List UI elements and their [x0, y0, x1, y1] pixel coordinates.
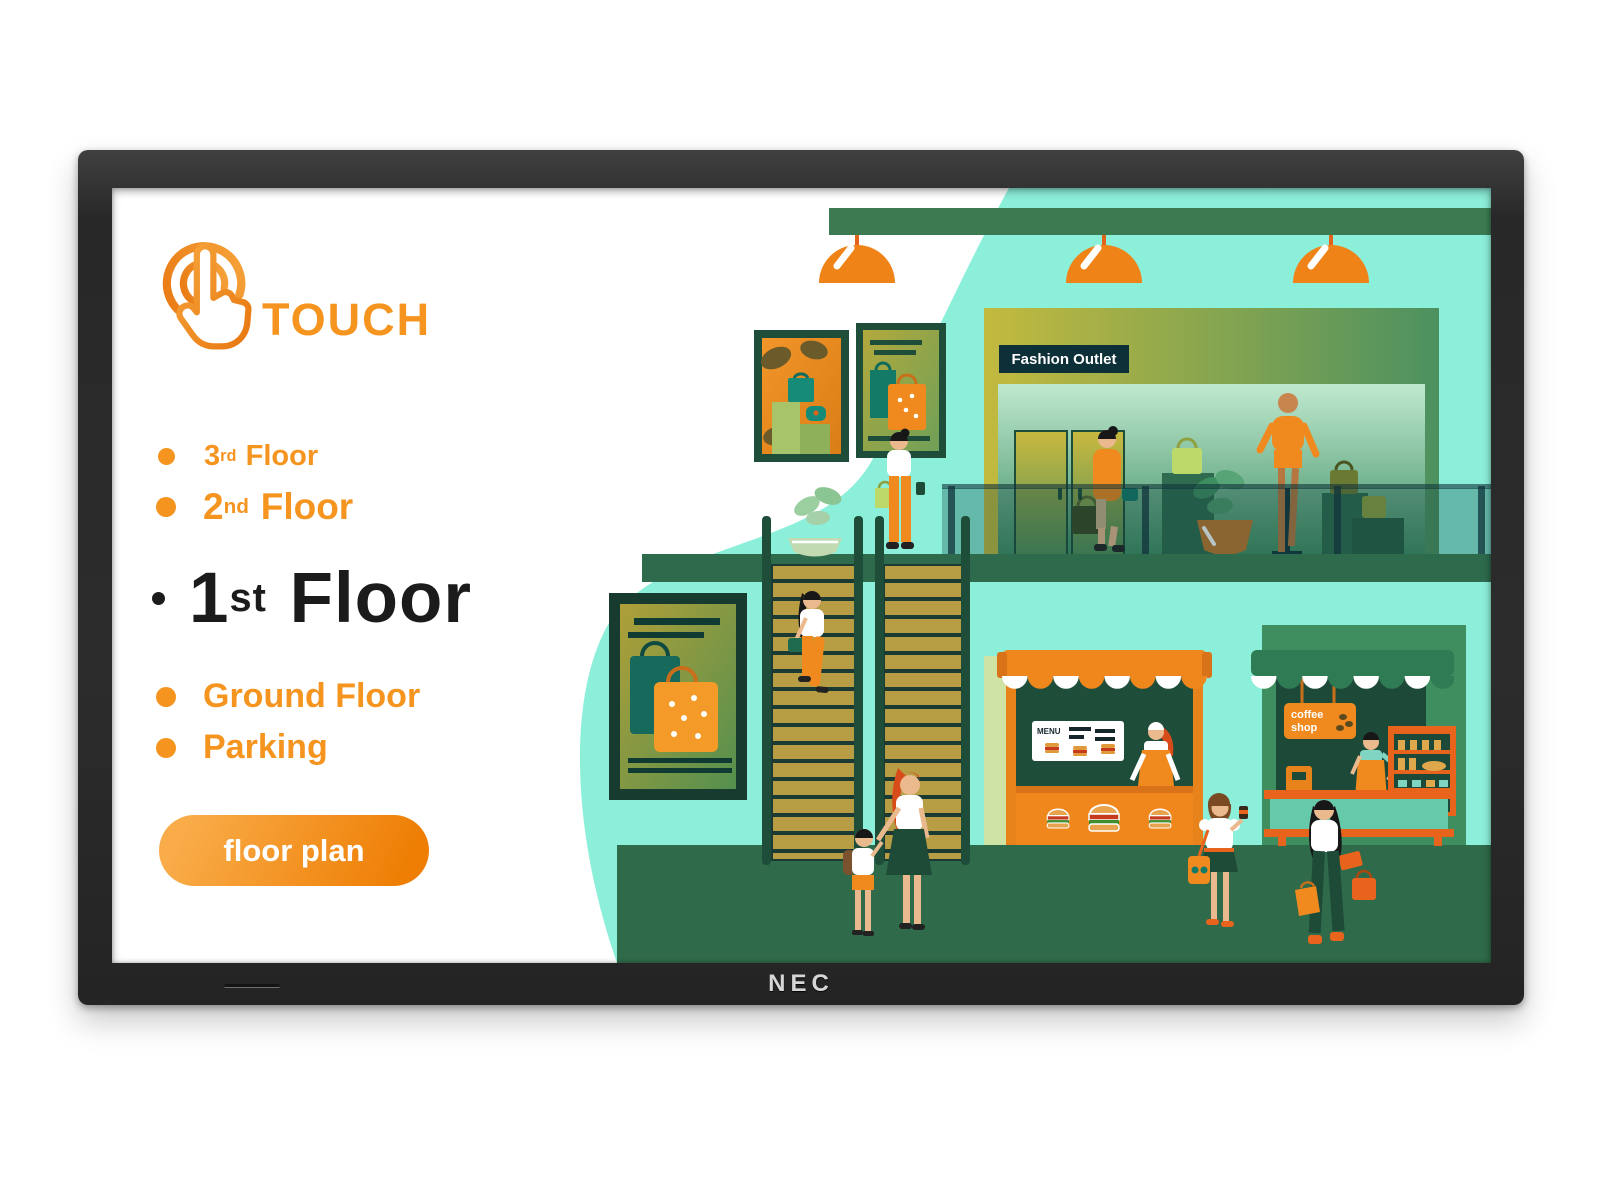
floor-item-3rd[interactable]: 3rdFloor — [158, 440, 318, 473]
nec-brand-logo: NEC — [768, 970, 834, 998]
floor-item-parking[interactable]: Parking — [156, 728, 328, 767]
nec-touch-display: Fashion Outlet — [78, 150, 1524, 1005]
floor-item-2nd[interactable]: 2ndFloor — [156, 486, 353, 528]
touch-title: TOUCH — [262, 294, 431, 346]
bullet-icon — [152, 592, 165, 605]
bezel-sensor-slot — [224, 984, 280, 988]
bullet-icon — [158, 448, 175, 465]
touch-gesture-icon — [148, 238, 256, 366]
bullet-icon — [156, 497, 176, 517]
floor-item-1st-selected[interactable]: 1stFloor — [152, 558, 472, 639]
floor-plan-button[interactable]: floor plan — [159, 815, 429, 886]
floor-item-ground[interactable]: Ground Floor — [156, 677, 420, 716]
bullet-icon — [156, 687, 176, 707]
floor-menu-panel: TOUCH 3rdFloor 2ndFloor 1stFloor Ground … — [112, 188, 1491, 963]
bullet-icon — [156, 738, 176, 758]
display-screen: Fashion Outlet — [112, 188, 1491, 963]
